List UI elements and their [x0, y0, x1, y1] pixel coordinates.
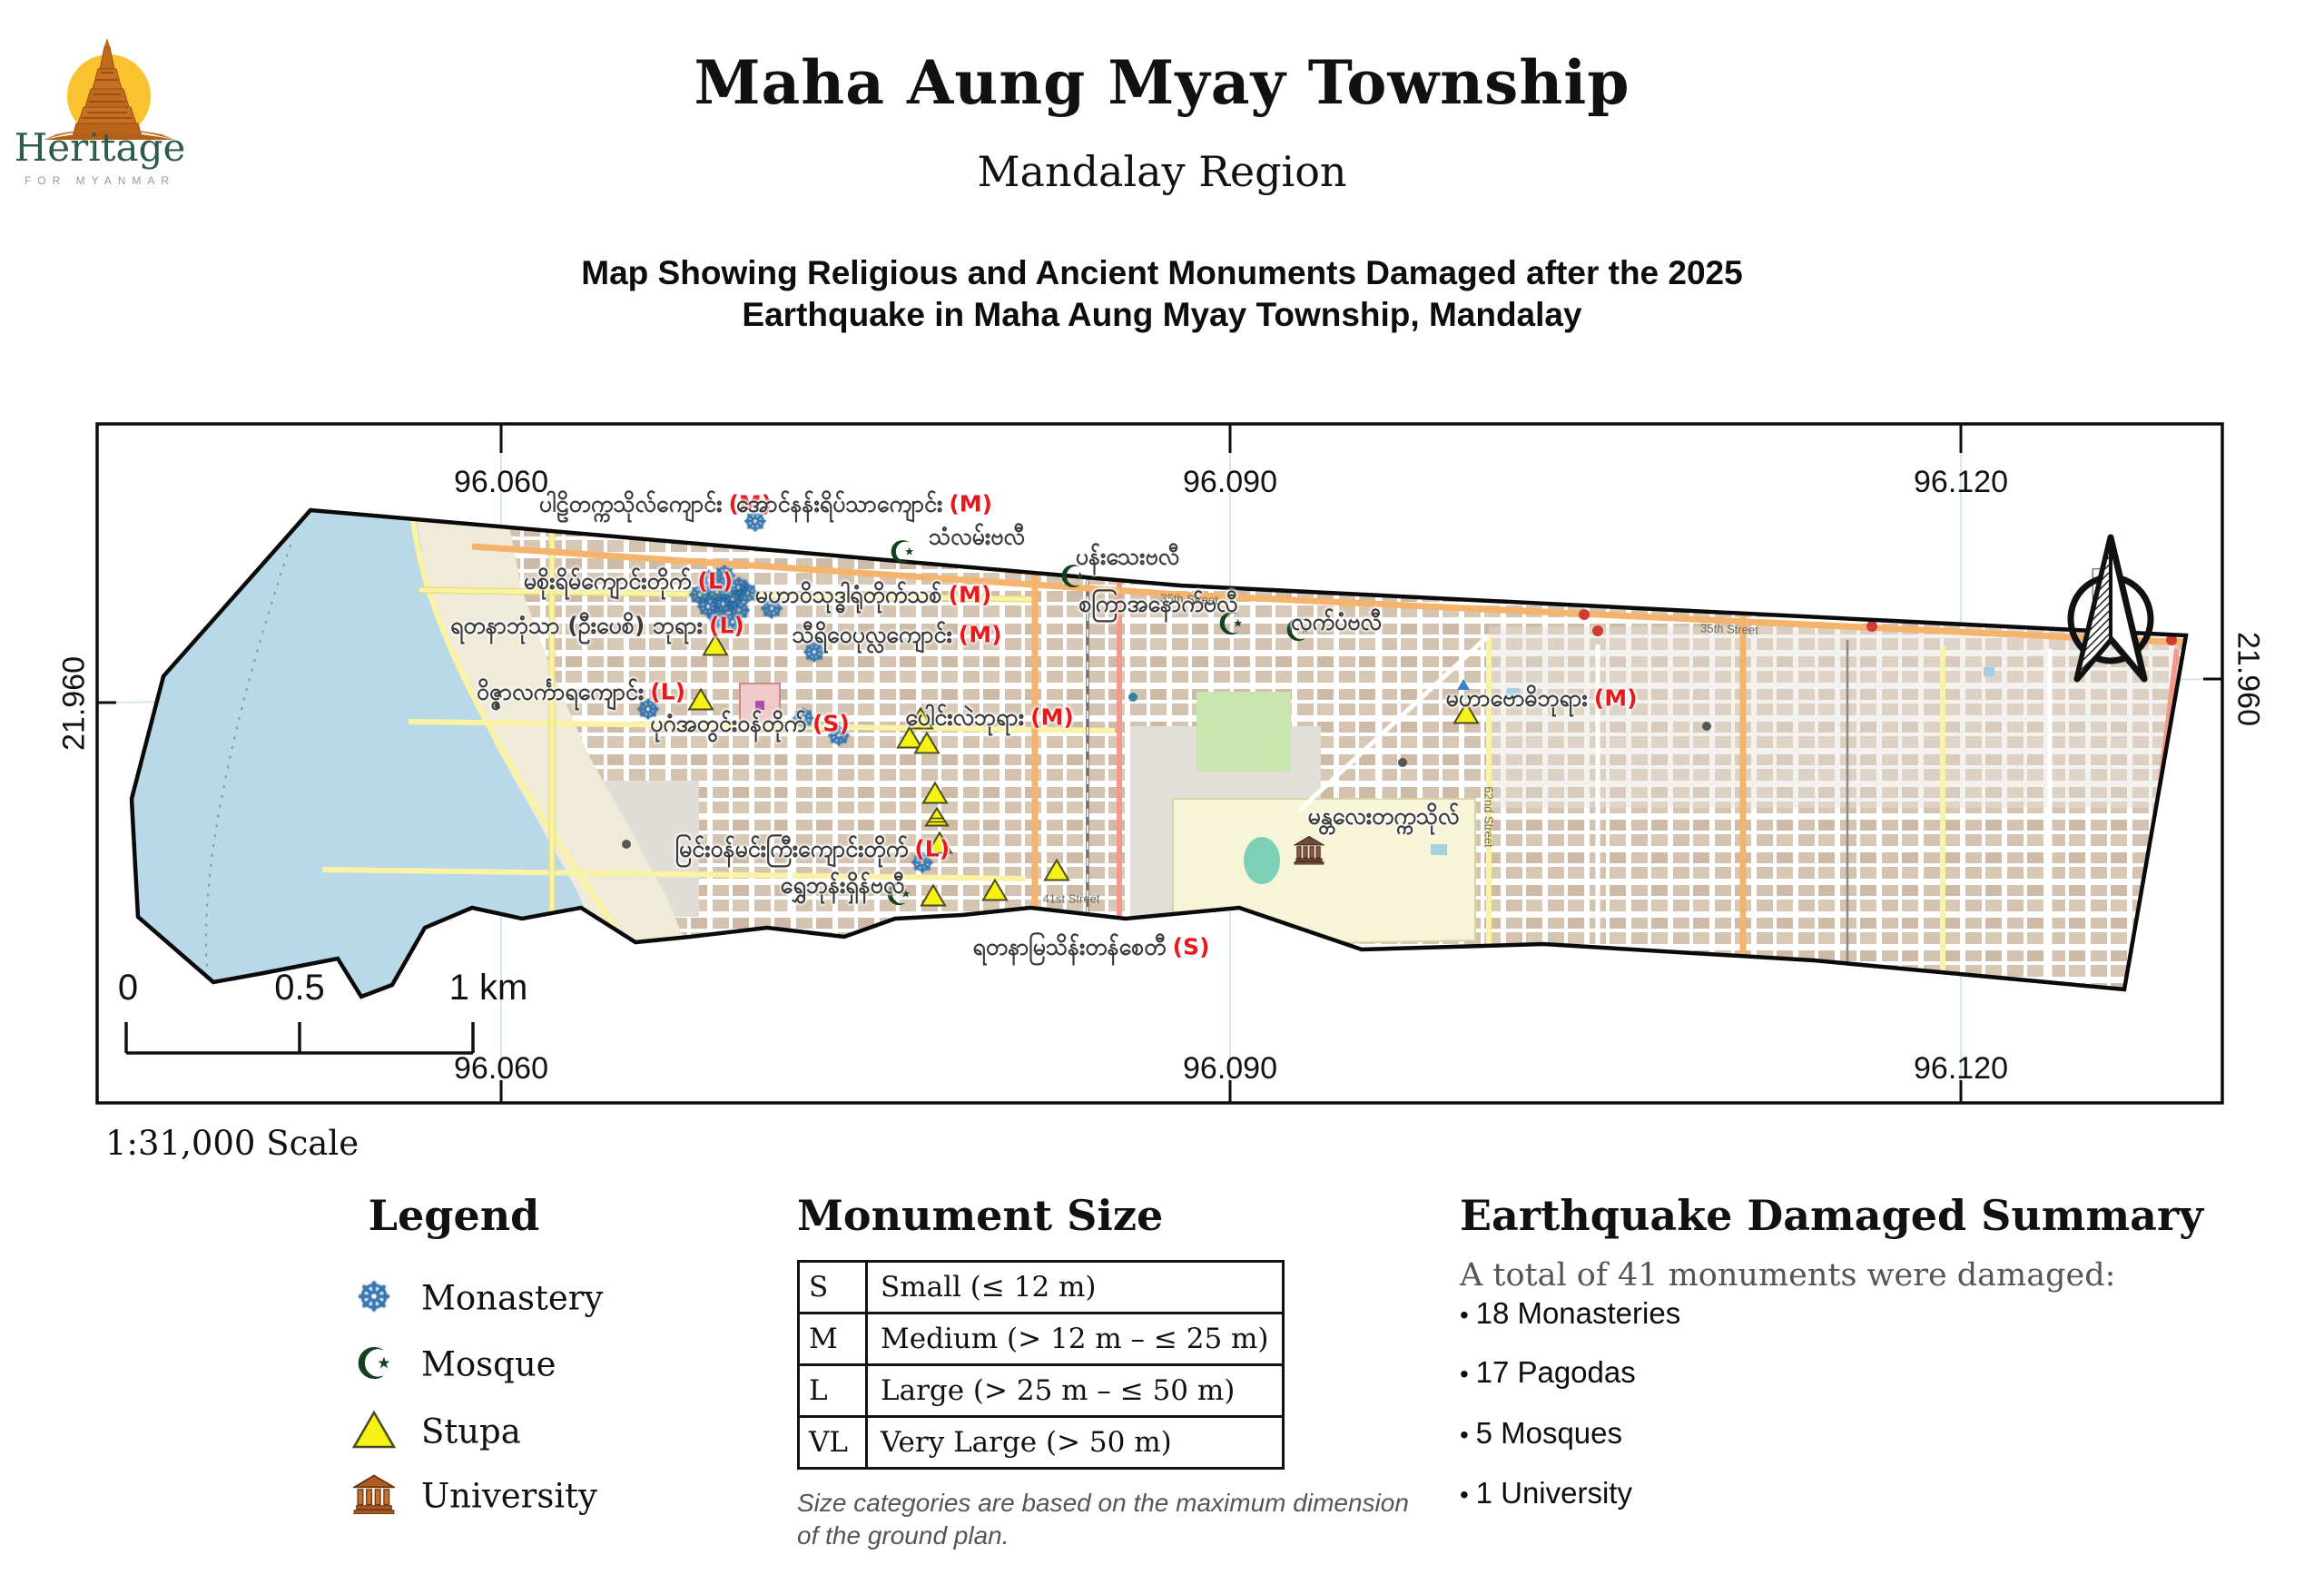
- size-code-cell: VL: [799, 1417, 867, 1469]
- summary-bullet-university: 1 University: [1460, 1476, 1632, 1510]
- lon-label-bottom-1: 96.060: [454, 1051, 548, 1087]
- size-code-cell: M: [799, 1313, 867, 1365]
- lat-label-right: 21.960: [2230, 632, 2266, 726]
- legend-label: Mosque: [421, 1345, 556, 1384]
- size-desc-cell: Very Large (> 50 m): [867, 1417, 1284, 1469]
- size-desc-cell: Medium (> 12 m – ≤ 25 m): [867, 1313, 1284, 1365]
- summary-bullet-mosques: 5 Mosques: [1460, 1416, 1622, 1451]
- university-icon: [353, 1474, 395, 1518]
- summary-bullet-monasteries: 18 Monasteries: [1460, 1296, 1680, 1331]
- size-code-cell: S: [799, 1262, 867, 1313]
- summary-bullet-pagodas: 17 Pagodas: [1460, 1355, 1636, 1390]
- monument-size-table: S Small (≤ 12 m) M Medium (> 12 m – ≤ 25…: [797, 1260, 1285, 1470]
- map-basemap-art: [91, 418, 2233, 1117]
- legend-item-stupa: Stupa: [347, 1402, 728, 1461]
- monument-size-title: Monument Size: [797, 1191, 1163, 1240]
- legend-item-university: University: [347, 1467, 728, 1525]
- legend-title: Legend: [369, 1191, 540, 1240]
- lon-label-top-2: 96.090: [1183, 465, 1277, 500]
- table-row: M Medium (> 12 m – ≤ 25 m): [799, 1313, 1284, 1365]
- mosque-icon: ☪: [354, 1343, 393, 1386]
- lon-label-top-3: 96.120: [1914, 465, 2008, 500]
- monastery-icon: ☸: [356, 1278, 391, 1318]
- size-note: Size categories are based on the maximum…: [797, 1487, 1433, 1553]
- legend-item-monastery: ☸ Monastery: [347, 1269, 728, 1327]
- size-desc-cell: Large (> 25 m – ≤ 50 m): [867, 1365, 1284, 1417]
- lat-label-left: 21.960: [57, 656, 93, 751]
- scale-label-05: 0.5: [274, 968, 325, 1008]
- scale-ratio-text: 1:31,000 Scale: [105, 1124, 359, 1163]
- scale-bar: [126, 1022, 473, 1053]
- scale-label-0: 0: [118, 968, 138, 1008]
- legend-label: Stupa: [421, 1412, 521, 1451]
- size-code-cell: L: [799, 1365, 867, 1417]
- summary-intro: A total of 41 monuments were damaged:: [1460, 1257, 2115, 1294]
- summary-title: Earthquake Damaged Summary: [1460, 1191, 2203, 1240]
- table-row: VL Very Large (> 50 m): [799, 1417, 1284, 1469]
- lon-label-bottom-3: 96.120: [1914, 1051, 2008, 1087]
- legend-label: University: [421, 1477, 597, 1516]
- stupa-icon: [351, 1410, 397, 1453]
- legend-label: Monastery: [421, 1279, 603, 1318]
- lon-label-top-1: 96.060: [454, 465, 548, 500]
- legend-item-mosque: ☪ Mosque: [347, 1335, 728, 1393]
- size-desc-cell: Small (≤ 12 m): [867, 1262, 1284, 1313]
- table-row: L Large (> 25 m – ≤ 50 m): [799, 1365, 1284, 1417]
- scale-label-1km: 1 km: [449, 968, 528, 1008]
- north-arrow-icon: N: [2071, 537, 2151, 679]
- poster-canvas: Heritage FOR MYANMAR Maha Aung Myay Town…: [0, 0, 2324, 1584]
- lon-label-bottom-2: 96.090: [1183, 1051, 1277, 1087]
- table-row: S Small (≤ 12 m): [799, 1262, 1284, 1313]
